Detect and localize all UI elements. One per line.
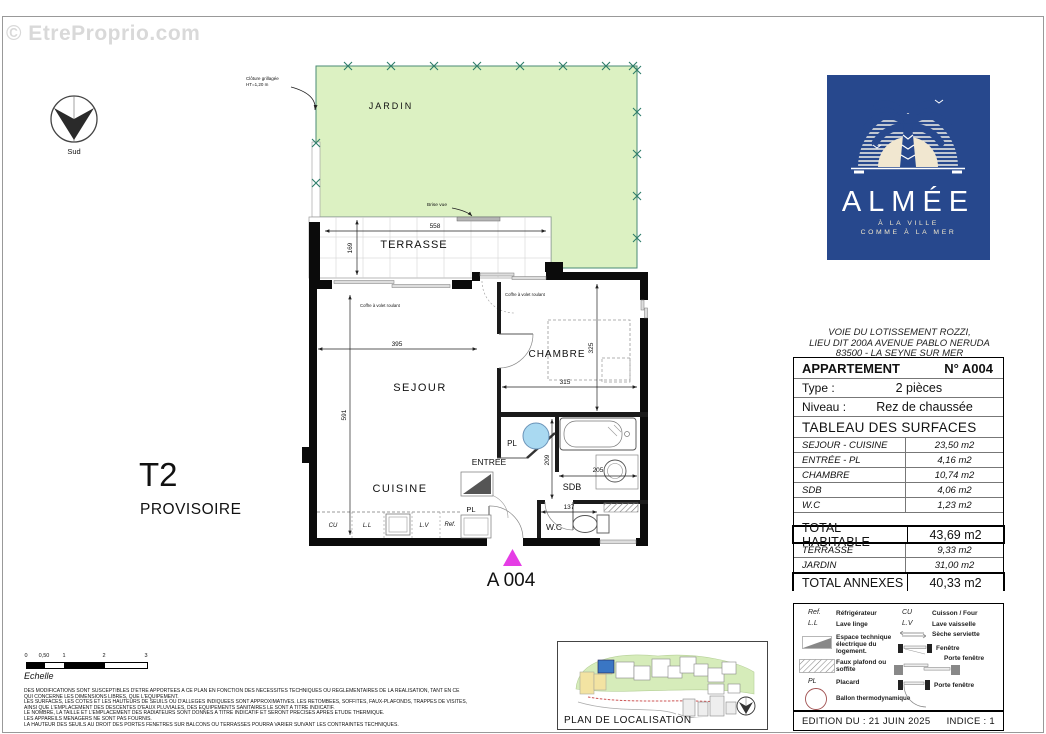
thermodynamic-tank-icon [804,687,828,711]
legend-label: Placard [836,679,860,686]
palm-tree-icon [827,75,990,181]
electrical-space-icon [802,636,832,649]
brand-tagline-2: COMME À LA MER [827,228,990,237]
edition-bar: EDITION DU : 21 JUIN 2025 INDICE : 1 [793,711,1004,731]
svg-text:209: 209 [544,454,551,465]
svg-text:315: 315 [560,379,571,386]
svg-text:205: 205 [593,467,604,474]
disclaimer-text: DES MODIFICATIONS SONT SUSCEPTIBLES D'ET… [24,689,544,728]
entrance-marker [503,549,522,566]
brise-vue-screen [457,217,500,221]
thermodynamic-tank [523,423,549,449]
room-label-pl-entry: PL [466,505,475,514]
toilet-bowl [573,516,597,533]
room-label-cuisine: CUISINE [372,483,427,495]
legend-symbol: CU [902,609,912,616]
legend-label: Lave linge [836,621,868,628]
compass-label: Sud [67,147,80,156]
table-row: SDB4,06 m2 [794,483,1003,498]
table-row-niveau: Niveau : Rez de chaussée [794,398,1003,417]
svg-text:Ref.: Ref. [444,522,455,528]
room-label-entree: ENTREE [472,457,507,467]
fence-annotation: Clôture grillagée HT=1,20 m [246,76,315,110]
indice: INDICE : 1 [947,716,995,727]
false-ceiling-hatch [604,503,638,512]
legend-label: Sèche serviette [932,631,980,638]
legend-label: Espace technique électrique du logement. [836,634,898,655]
table-row-apartment: APPARTEMENT N° A004 [794,358,1003,379]
svg-text:HT=1,20 m: HT=1,20 m [246,82,269,87]
highlighted-unit [598,660,614,673]
scale-tick: 2 [102,653,105,659]
sliding-door-window-icon [894,661,960,677]
legend-label: Lave vaisselle [932,621,976,628]
legend-label: Réfrigérateur [836,610,877,617]
towel-dryer-icon [900,631,926,639]
svg-text:558: 558 [430,223,441,230]
almee-logo: ALMÉE À LA VILLE COMME À LA MER [827,75,990,260]
table-title: TABLEAU DES SURFACES [794,417,1003,438]
scale-tick: 0 [24,653,27,659]
brand-name: ALMÉE [827,186,990,219]
room-labels: SEJOUR CUISINE CHAMBRE ENTREE SDB W.C PL… [372,349,585,532]
svg-text:169: 169 [347,242,354,253]
compass-south-icon: Sud [51,96,97,156]
scale-tick: 1 [62,653,65,659]
legend-label: Fenêtre [936,645,959,652]
window-icon [898,642,932,655]
false-ceiling-hatch-icon [799,659,835,673]
table-row-total-habitable: TOTAL HABITABLE43,69 m2 [792,525,1005,544]
scale-label: Echelle [24,671,54,681]
svg-text:325: 325 [588,342,595,353]
table-row: SEJOUR - CUISINE23,50 m2 [794,438,1003,453]
unit-number: A 004 [487,570,536,591]
hinged-door-window-icon [898,680,930,708]
localisation-box: PLAN DE LOCALISATION [557,641,768,730]
legend-label: Porte fenêtre [934,682,974,689]
floor-plan-drawing: Sud JARDIN Clôture grillagée HT=1,20 m [0,0,790,640]
room-label-chambre: CHAMBRE [528,349,585,360]
table-row: CHAMBRE10,74 m2 [794,468,1003,483]
svg-text:Brise vue: Brise vue [427,202,447,208]
room-label-sejour: SEJOUR [393,382,447,394]
localisation-title: PLAN DE LOCALISATION [564,715,692,726]
room-label-sdb: SDB [563,482,582,492]
table-row: JARDIN31,00 m2 [794,558,1003,573]
shutter-note-sejour: Coffre à volet roulant [360,303,401,308]
brand-tagline-1: À LA VILLE [827,219,990,228]
toilet-tank [597,515,609,533]
svg-text:L.V: L.V [419,523,429,529]
room-label-jardin: JARDIN [369,101,414,111]
room-label-pl-closet: PL [507,439,517,448]
legend-label: Cuisson / Four [932,610,978,617]
address-line-1: VOIE DU LOTISSEMENT ROZZI, [782,328,1017,339]
svg-text:CU: CU [329,523,338,529]
svg-text:137: 137 [564,504,575,511]
table-row: ENTRÉE - PL4,16 m2 [794,453,1003,468]
room-label-wc: W.C [546,522,562,532]
apartment-label: APPARTEMENT [802,361,900,376]
legend-label: Faux plafond ou soffite [836,659,894,673]
project-address: VOIE DU LOTISSEMENT ROZZI, LIEU DIT 200A… [782,328,1017,360]
legend-symbol: Ref. [808,609,821,616]
status-title: PROVISOIRE [140,501,241,518]
table-row-total-annexes: TOTAL ANNEXES40,33 m2 [792,572,1005,591]
table-row-type: Type : 2 pièces [794,379,1003,398]
surface-table: APPARTEMENT N° A004 Type : 2 pièces Nive… [793,357,1004,591]
svg-text:591: 591 [341,409,348,420]
edition-date: EDITION DU : 21 JUIN 2025 [802,716,930,727]
table-row: W.C1,23 m2 [794,498,1003,513]
scale-tick: 3 [144,653,147,659]
room-label-terrasse: TERRASSE [380,239,447,251]
svg-text:L.L: L.L [363,523,371,529]
site-map [558,644,767,718]
svg-text:395: 395 [392,341,403,348]
scale-tick: 0,50 [39,653,50,659]
svg-text:Clôture grillagée: Clôture grillagée [246,76,279,81]
shutter-note-chambre: Coffre à volet roulant [505,292,546,297]
legend-box: Ref. Réfrigérateur L.L Lave linge Espace… [793,603,1004,711]
floor-plan-sheet: © EtreProprio.com Sud [0,0,1046,734]
legend-symbol: L.V [902,620,913,627]
legend-symbol: L.L [808,620,818,627]
apartment-number: N° A004 [944,361,993,376]
legend-symbol: PL [808,678,817,685]
type-title: T2 [139,456,178,493]
